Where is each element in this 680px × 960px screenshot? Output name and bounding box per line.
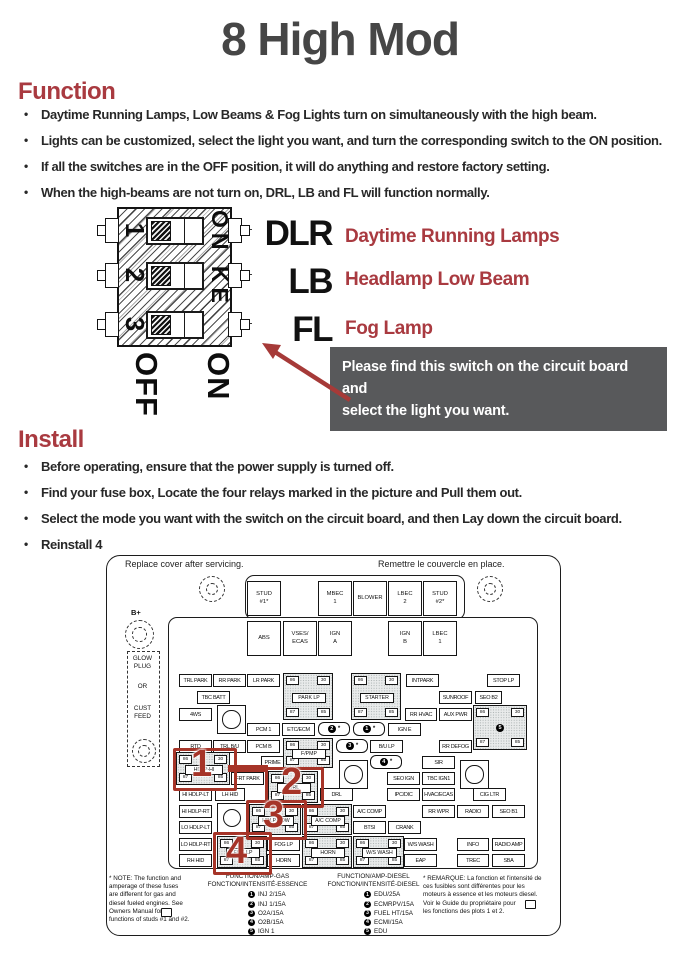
relay-name-bar: W/S WASH	[362, 848, 397, 858]
fuse-trec: TREC	[457, 854, 489, 867]
b-plus-label: B+	[131, 608, 141, 617]
fuse-drl: DRL	[320, 788, 353, 801]
screw-box	[460, 760, 489, 789]
fuse-b-u-lp: B/U LP	[370, 740, 403, 753]
relay-circled-5: 863087855	[473, 705, 527, 750]
legend-item-label: IGN 1	[258, 928, 274, 935]
dip-slider-actuator	[151, 315, 171, 335]
legend-header: FONCTION/INTENSITÉ-DIESEL	[306, 881, 441, 889]
dip-side-label: ON KE	[206, 210, 233, 346]
dip-switch-number: 3	[122, 312, 150, 336]
function-heading: Function	[18, 78, 115, 106]
glow-plug-label: OR	[127, 683, 158, 691]
code-dlr: DLR	[250, 214, 332, 254]
legend-item-label: O2A/15A	[258, 910, 284, 917]
oval-fuse-2: 2*	[318, 722, 350, 736]
square-mbec-1: MBEC 1	[318, 581, 352, 616]
dip-slider-divider	[184, 264, 185, 288]
fuse-btsi: BTSI	[353, 821, 386, 834]
circled-number: 4	[380, 758, 388, 766]
legend-item: 1EDU/25A	[364, 891, 441, 898]
relay-pin: 30	[385, 676, 398, 685]
legend-item-label: INJ 2/15A	[258, 891, 286, 898]
fuse-aux-pwr: AUX PWR	[439, 708, 472, 721]
asterisk: *	[338, 726, 340, 732]
fuse-a-c-comp: A/C COMP	[353, 805, 386, 818]
dip-switch-number: 1	[122, 218, 150, 242]
circled-number: 2	[328, 725, 336, 733]
manual-book-icon	[161, 908, 172, 917]
oval-fuse-4: 4*	[370, 755, 402, 769]
bullet-item: Daytime Running Lamps, Low Beams & Fog L…	[18, 106, 674, 125]
relay-pin: 87	[476, 738, 489, 747]
legend-item: 5EDU	[364, 928, 441, 935]
dip-slider	[146, 217, 204, 245]
square-lbec-2: LBEC 2	[388, 581, 422, 616]
relay-park-lp: 86308785PARK LP	[283, 673, 333, 720]
relay-name-bar: F/PMP	[292, 749, 327, 759]
fuse-seo-b1: SEO B1	[492, 805, 525, 818]
fuse-radio: RADIO	[457, 805, 489, 818]
bullet-item: Before operating, ensure that the power …	[18, 458, 646, 477]
screw-box	[217, 803, 247, 833]
dip-on-label: ON	[200, 352, 236, 414]
oval-fuse-3: 3*	[336, 739, 368, 753]
fuse-eap: EAP	[404, 854, 437, 867]
relay-name-bar: HORN	[311, 848, 346, 858]
screw-box	[339, 760, 368, 789]
circled-number: 1	[248, 891, 255, 898]
legend-item-label: ECMI/15A	[374, 919, 403, 926]
asterisk: *	[373, 726, 375, 732]
function-bullet-list: Daytime Running Lamps, Low Beams & Fog L…	[18, 106, 674, 209]
fuse-lr-park: LR PARK	[247, 674, 280, 687]
install-heading: Install	[18, 426, 84, 454]
circled-number: 1	[364, 891, 371, 898]
highlight-number-3: 3	[263, 796, 284, 834]
legend-header: FONCTION/INTENSITÉ-ESSENCE	[190, 881, 325, 889]
relay-pin: 86	[354, 676, 367, 685]
desc-dlr: Daytime Running Lamps	[345, 226, 559, 248]
highlight-number-4: 4	[226, 832, 247, 870]
relay-starter: 86308785STARTER	[351, 673, 401, 720]
relay-pin: 85	[511, 738, 524, 747]
cover-note-fr: Remettre le couvercle en place.	[378, 559, 505, 569]
oval-fuse-1: 1*	[353, 722, 385, 736]
highlight-number-2: 2	[281, 763, 302, 801]
relay-a-c-comp: 86308785A/C COMP	[302, 804, 352, 835]
circled-number: 4	[364, 919, 371, 926]
legend-gas: FUNCTION/AMP-GASFONCTION/INTENSITÉ-ESSEN…	[190, 873, 325, 935]
relay-name-bar: PARK LP	[292, 693, 327, 703]
fuse-rr-defog: RR DEFOG	[439, 740, 472, 753]
note-line: les fonctions des plots 1 et 2.	[423, 908, 563, 916]
relay-pin: 85	[317, 708, 330, 717]
fuse-intpark: INTPARK	[406, 674, 439, 687]
legend-item: 3FUEL HT/15A	[364, 910, 441, 917]
callout-line1: Please find this switch on the circuit b…	[342, 356, 655, 400]
fuse-w-s-wash: W/S WASH	[404, 838, 437, 851]
bullet-item: Select the mode you want with the switch…	[18, 510, 646, 529]
legend-header: FUNCTION/AMP-DIESEL	[306, 873, 441, 881]
dip-slider-divider	[184, 313, 185, 337]
fuse-ign-e: IGN E	[388, 723, 421, 736]
asterisk: *	[356, 743, 358, 749]
fuse-4ws: 4WS	[179, 708, 212, 721]
note-line: moteurs à essence et les moteurs diesel.	[423, 891, 563, 899]
legend-item-label: ECMRPV/15A	[374, 901, 414, 908]
bolt-circle	[125, 620, 154, 649]
legend-item-label: EDU	[374, 928, 387, 935]
fuse-ipc-dic: IPC/DIC	[387, 788, 420, 801]
fuse-sunroof: SUNROOF	[439, 691, 472, 704]
legend-item-label: O2B/15A	[258, 919, 284, 926]
circled-number: 4	[248, 919, 255, 926]
relay-pin: 30	[317, 676, 330, 685]
dip-off-label: OFF	[128, 352, 164, 432]
glow-plug-label: CUST FEED	[127, 705, 158, 721]
relay-name-bar: STARTER	[360, 693, 395, 703]
fuse-hi-hdlp-rt: HI HDLP-RT	[179, 805, 212, 818]
fuse-trl-park: TRL PARK	[179, 674, 212, 687]
relay-pin: 87	[354, 708, 367, 717]
fuse-rr-park: RR PARK	[213, 674, 246, 687]
fuse-cig-ltr: CIG LTR	[473, 788, 506, 801]
callout-arrow	[240, 330, 360, 420]
fuse-sba: SBA	[492, 854, 525, 867]
square-stud-2-: STUD #2*	[423, 581, 457, 616]
circled-number: 3	[364, 910, 371, 917]
cover-note-en: Replace cover after servicing.	[125, 559, 244, 569]
code-lb: LB	[250, 262, 332, 302]
screw-box	[217, 705, 246, 734]
legend-item-label: FUEL HT/15A	[374, 910, 413, 917]
dip-pin-left	[105, 263, 119, 288]
fuse-hvac-ecas: HVAC/ECAS	[422, 788, 455, 801]
fuse-crank: CRANK	[388, 821, 421, 834]
dip-pin-left	[105, 312, 119, 337]
fuse-tbc-batt: TBC BATT	[197, 691, 230, 704]
dip-slider	[146, 311, 204, 339]
fuse-rh-hid: RH HID	[179, 854, 212, 867]
square-blower: BLOWER	[353, 581, 387, 616]
bolt-circle	[477, 576, 503, 602]
fuse-stop-lp: STOP LP	[487, 674, 520, 687]
legend-item: 2ECMRPV/15A	[364, 901, 441, 908]
square-ign-b: IGN B	[388, 621, 422, 656]
relay-pin: 30	[511, 708, 524, 717]
desc-lb: Headlamp Low Beam	[345, 269, 529, 291]
relay-w-s-wash: 86308785W/S WASH	[353, 836, 404, 868]
relay-pin: 30	[336, 839, 349, 848]
relay-pin: 86	[305, 839, 318, 848]
dip-slider	[146, 262, 204, 290]
fuse-pcm-b: PCM B	[247, 740, 280, 753]
circled-number: 2	[364, 901, 371, 908]
dip-slider-actuator	[151, 221, 171, 241]
square-vses-ecas: VSES/ ECAS	[283, 621, 317, 656]
relay-horn: 86308785HORN	[302, 836, 352, 868]
square-ign-a: IGN A	[318, 621, 352, 656]
legend-item-label: INJ 1/15A	[258, 901, 286, 908]
square-lbec-1: LBEC 1	[423, 621, 457, 656]
relay-pin: 86	[286, 676, 299, 685]
relay-pin: 30	[388, 839, 401, 848]
bolt-circle	[132, 739, 156, 763]
asterisk: *	[390, 759, 392, 765]
circled-number: 3	[248, 910, 255, 917]
relay-name-bar: A/C COMP	[311, 816, 346, 826]
bullet-item: When the high-beams are not turn on, DRL…	[18, 184, 674, 203]
circled-number: 2	[248, 901, 255, 908]
fuse-info: INFO	[457, 838, 489, 851]
relay-pin: 87	[286, 708, 299, 717]
dip-slider-divider	[184, 219, 185, 243]
fuse-rr-wpr: RR WPR	[422, 805, 455, 818]
square-stud-1-: STUD #1*	[247, 581, 281, 616]
fusebox-diagram: Replace cover after servicing.Remettre l…	[85, 545, 585, 945]
fuse-pcm-1: PCM 1	[247, 723, 280, 736]
dip-pin-left	[105, 218, 119, 243]
note-line: * REMARQUE: La fonction et l'intensité d…	[423, 875, 563, 883]
fuse-tbc-ign1: TBC IGN1	[422, 772, 455, 785]
legend-diesel: FUNCTION/AMP-DIESELFONCTION/INTENSITÉ-DI…	[306, 873, 441, 935]
dip-pin-right-stub	[240, 270, 250, 281]
relay-pin: 85	[385, 708, 398, 717]
fuse-sir: SIR	[422, 756, 455, 769]
bullet-item: Find your fuse box, Locate the four rela…	[18, 484, 646, 503]
manual-book-icon	[525, 900, 536, 909]
square-abs: ABS	[247, 621, 281, 656]
fuse-lo-hdlp-rt: LO HDLP-RT	[179, 838, 212, 851]
fuse-seo-b2: SEO B2	[475, 691, 502, 704]
dip-pin-right-stub	[240, 225, 250, 236]
circled-number: 5	[364, 928, 371, 935]
circled-number: 5	[496, 724, 504, 732]
callout-line2: select the light you want.	[342, 400, 655, 422]
relay-pin: 86	[356, 839, 369, 848]
legend-item-label: EDU/25A	[374, 891, 400, 898]
circled-number: 3	[346, 742, 354, 750]
bullet-item: If all the switches are in the OFF posit…	[18, 158, 674, 177]
legend-note-fr: * REMARQUE: La fonction et l'intensité d…	[423, 875, 563, 916]
relay-pin: 86	[476, 708, 489, 717]
page-title: 8 High Mod	[0, 12, 680, 66]
fuse-seo-ign: SEO IGN	[387, 772, 420, 785]
legend-item: 4ECMI/15A	[364, 919, 441, 926]
fuse-rr-hvac: RR HVAC	[405, 708, 437, 721]
circled-number: 1	[363, 725, 371, 733]
dip-slider-actuator	[151, 266, 171, 286]
dip-pin-right-stub	[240, 319, 250, 330]
circled-number: 5	[248, 928, 255, 935]
highlight-number-1: 1	[191, 745, 212, 783]
fuse-radio-amp: RADIO AMP	[492, 838, 525, 851]
dip-switch-number: 2	[122, 263, 150, 287]
bolt-circle	[199, 576, 225, 602]
fuse-lo-hdlp-lt: LO HDLP-LT	[179, 821, 212, 834]
note-line: ces fusibles sont différentes pour les	[423, 883, 563, 891]
glow-plug-label: GLOW PLUG	[127, 655, 158, 671]
fuse-etc-ecm: ETC/ECM	[282, 723, 315, 736]
callout-box: Please find this switch on the circuit b…	[330, 347, 667, 431]
note-line: Voir le Guide du propriétaire pour	[423, 900, 563, 908]
bullet-item: Lights can be customized, select the lig…	[18, 132, 674, 151]
